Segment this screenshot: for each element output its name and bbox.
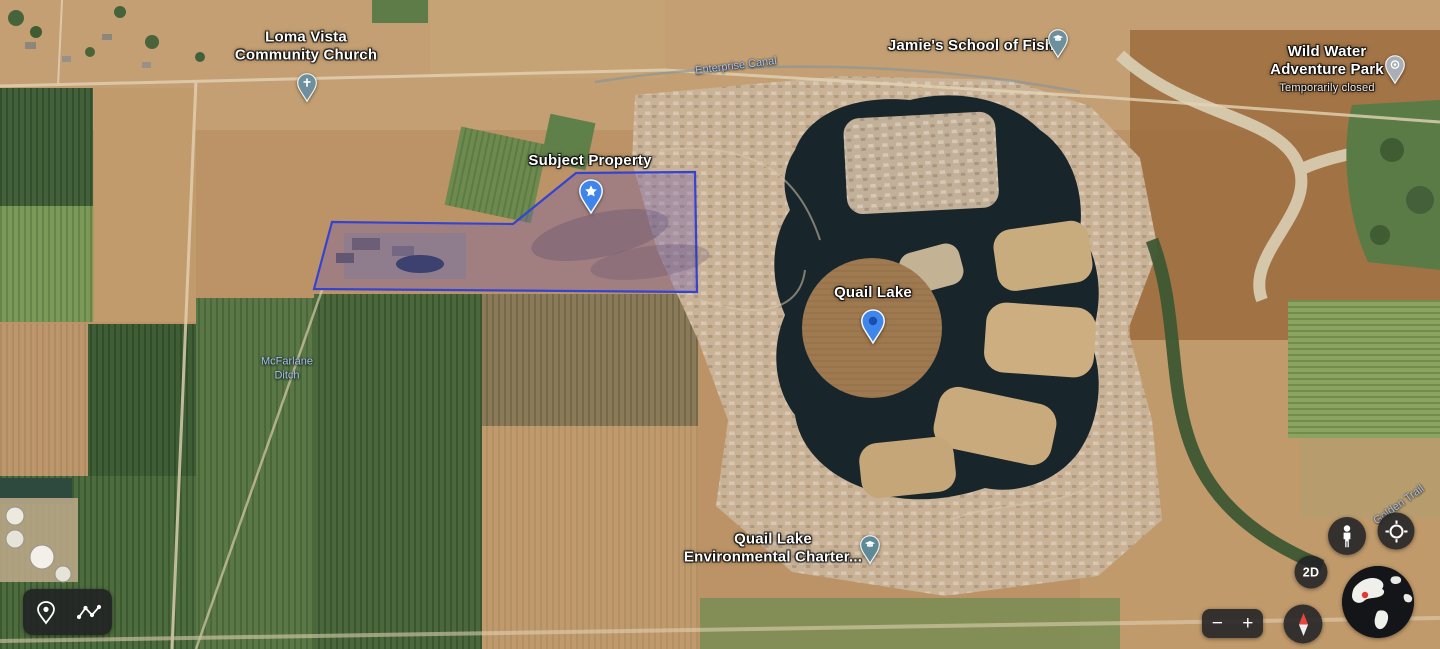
church-pin-icon [296,73,318,103]
google-earth-viewport: Loma Vista Community Church Enterprise C… [0,0,1440,649]
label-line: Community Church [235,47,377,65]
poi-label-wild-water-adventure-park[interactable]: Wild Water Adventure Park Temporarily cl… [1270,43,1384,95]
amusement-park-pin[interactable] [1384,55,1406,85]
label-line: Environmental Charter... [684,549,862,567]
measure-path-button[interactable] [75,597,105,627]
placemark-label-subject-property[interactable]: Subject Property [528,152,651,170]
placemark-icon [34,599,58,625]
label-line: Loma Vista [235,29,377,47]
pegman-street-view-button[interactable] [1328,517,1366,555]
map-tools-toolbar [23,589,112,635]
measure-path-icon [77,601,103,623]
church-pin[interactable] [296,73,318,103]
globe-overview-button[interactable] [1342,566,1414,638]
quail-lake-pin[interactable] [860,309,886,345]
pegman-icon [1335,523,1359,549]
compass-needle-icon [1289,610,1317,638]
school-pin-icon [859,535,881,565]
poi-label-quail-lake-environmental-charter[interactable]: Quail Lake Environmental Charter... [684,531,862,568]
school-pin-environmental-charter[interactable] [859,535,881,565]
label-line: Adventure Park [1270,61,1384,79]
poi-label-jamies-school-of-fish[interactable]: Jamie's School of Fish [888,37,1054,55]
2d-mode-button[interactable]: 2D [1295,556,1328,589]
globe-location-dot [1362,592,1368,598]
star-pin-icon [578,179,604,215]
add-placemark-button[interactable] [31,597,61,627]
place-pin-icon [860,309,886,345]
poi-label-loma-vista-community-church[interactable]: Loma Vista Community Church [235,29,377,66]
2d-mode-label: 2D [1303,565,1320,579]
amusement-park-pin-icon [1384,55,1406,85]
poi-status-temporarily-closed: Temporarily closed [1270,82,1384,95]
water-label-mcfarlane-ditch: McFarlane Ditch [261,355,313,384]
my-location-button[interactable] [1378,513,1415,550]
school-pin-jamies[interactable] [1047,29,1069,59]
compass-control[interactable] [1284,605,1323,644]
my-location-icon [1383,518,1409,544]
zoom-in-button[interactable]: + [1233,609,1264,638]
label-line: Quail Lake [684,531,862,549]
school-pin-icon [1047,29,1069,59]
label-line: Wild Water [1270,43,1384,61]
label-line: Quail Lake [834,284,912,302]
zoom-out-button[interactable]: − [1202,609,1233,638]
subject-property-pin[interactable] [578,179,604,215]
zoom-control: − + [1202,609,1263,638]
poi-label-quail-lake[interactable]: Quail Lake [834,284,912,302]
label-line: Subject Property [528,152,651,170]
globe-icon [1342,566,1414,638]
label-line: Jamie's School of Fish [888,37,1054,55]
